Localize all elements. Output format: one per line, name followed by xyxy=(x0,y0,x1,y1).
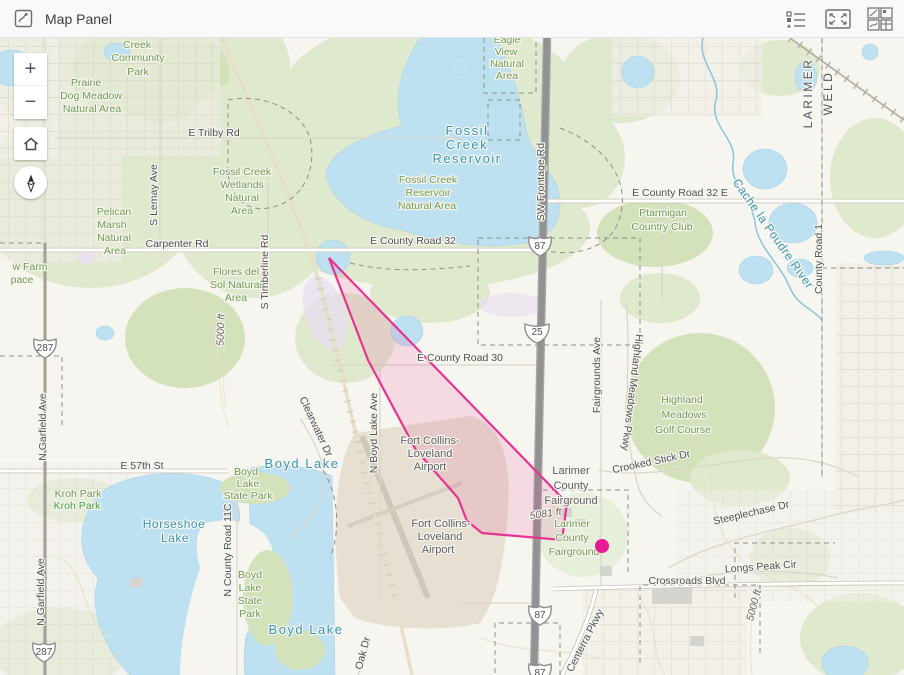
map-label: 5000 ft xyxy=(214,313,227,347)
map-label: County xyxy=(554,480,589,492)
map-label: Marsh xyxy=(97,219,126,231)
compass-button[interactable] xyxy=(14,166,47,199)
map-label: Larimer xyxy=(552,465,590,477)
home-icon xyxy=(21,134,41,154)
map-label: S Lemay Ave xyxy=(148,164,160,226)
map-label: Lake xyxy=(237,478,260,490)
map-label: Park xyxy=(127,66,149,78)
map-label: Crossroads Blvd xyxy=(648,575,725,587)
svg-text:87: 87 xyxy=(534,241,546,252)
map-label: E County Road 32 E xyxy=(632,187,728,199)
map-label: E County Road 30 xyxy=(417,352,503,364)
zoom-out-button[interactable]: − xyxy=(14,86,47,119)
map-label: Community xyxy=(111,52,165,64)
svg-text:287: 287 xyxy=(36,647,53,658)
map-label: Lake xyxy=(161,531,189,545)
map-label: w Farm xyxy=(12,261,48,273)
map-label: Ptarmigan xyxy=(639,207,687,219)
map-label: Boyd xyxy=(234,466,258,478)
panel-title: Map Panel xyxy=(45,11,112,27)
map-label: Horseshoe xyxy=(143,517,206,531)
map-label: Meadows xyxy=(662,409,707,421)
map-label: Eagle xyxy=(494,38,521,46)
map-label: LARIMER xyxy=(801,58,815,129)
map-label: SW Frontage Rd xyxy=(535,143,547,221)
map-label: Reservoir xyxy=(432,151,501,166)
map-label: E Trilby Rd xyxy=(188,127,240,139)
map-label: E County Road 32 xyxy=(370,235,456,247)
map-label: View xyxy=(495,46,518,58)
map-label: N Boyd Lake Ave xyxy=(368,393,380,474)
map-label: Area xyxy=(496,70,518,82)
map-label: Wetlands xyxy=(220,179,264,191)
point-marker-layer xyxy=(595,539,609,553)
map-label: County Road 1 xyxy=(813,224,825,294)
widget-grid-icon[interactable] xyxy=(866,5,894,33)
map-label: Fairgrounds Ave xyxy=(591,337,603,413)
svg-text:87: 87 xyxy=(534,610,546,621)
map-label: Kroh Park xyxy=(54,500,101,512)
zoom-in-button[interactable]: + xyxy=(14,53,47,86)
map-label: N Garfield Ave xyxy=(35,558,47,626)
zoom-control: + − xyxy=(14,53,47,119)
map-label: Lake xyxy=(239,582,262,594)
map-label: E 57th St xyxy=(120,460,163,472)
map-label: Fossil Creek xyxy=(213,166,272,178)
map-label: Fossil xyxy=(446,123,489,138)
map-label: Pelican xyxy=(97,206,132,218)
header-toolbar xyxy=(782,0,894,38)
point-marker[interactable] xyxy=(595,539,609,553)
map-label: Loveland xyxy=(408,448,453,460)
map-label: N County Road 11C xyxy=(222,503,234,597)
map-label: Creek xyxy=(123,39,152,51)
us-route-shield: 87 xyxy=(529,664,551,675)
map-label: State Park xyxy=(223,490,273,502)
legend-icon[interactable] xyxy=(782,5,810,33)
map-label: Park xyxy=(239,608,261,620)
map-label: Boyd Lake xyxy=(269,622,344,637)
map-label: State xyxy=(238,595,263,607)
map-label: pace xyxy=(11,274,34,286)
map-label: County xyxy=(555,532,589,544)
map-label: Carpenter Rd xyxy=(145,238,208,250)
map-label: Area xyxy=(231,205,253,217)
map-label: Area xyxy=(225,292,247,304)
home-button[interactable] xyxy=(14,127,47,160)
map-label: Airport xyxy=(414,461,446,473)
map-panel-icon xyxy=(14,9,33,28)
map-label: Fort Collins- xyxy=(400,435,460,447)
svg-text:87: 87 xyxy=(534,668,546,675)
svg-text:25: 25 xyxy=(531,327,543,338)
svg-text:287: 287 xyxy=(37,343,54,354)
map-label: Natural Area xyxy=(63,103,122,115)
map-label: Reservoir xyxy=(406,187,451,199)
map-label: Loveland xyxy=(418,531,463,543)
map-label: Flores del xyxy=(213,266,259,278)
map-label: Prairie xyxy=(71,77,102,89)
map-label: Highland xyxy=(661,394,703,406)
map-label: Natural xyxy=(97,232,131,244)
map-canvas[interactable]: 87258787287287 CreekCommunityParkPrairie… xyxy=(0,38,904,675)
map-panel-app: Map Panel xyxy=(0,0,904,675)
map-label: Fairground xyxy=(549,546,600,558)
compass-needle-icon xyxy=(21,173,41,193)
map-label: Larimer xyxy=(554,518,590,530)
map-label: Area xyxy=(104,245,126,257)
map-label: S Timberline Rd xyxy=(259,234,271,309)
map-label: Dog Meadow xyxy=(60,90,122,102)
map-label: Boyd Lake xyxy=(265,456,340,471)
map-label: Natural Area xyxy=(398,200,457,212)
map-label: Fort Collins- xyxy=(411,518,471,530)
map-label: Boyd xyxy=(238,569,262,581)
map-label: Airport xyxy=(422,544,454,556)
map-label: Natural xyxy=(225,192,259,204)
map-label: Fairground xyxy=(544,495,597,507)
expand-icon[interactable] xyxy=(824,5,852,33)
map-label: Country Club xyxy=(631,221,692,233)
map-label: N Garfield Ave xyxy=(37,393,49,461)
map-label: Sol Natural xyxy=(210,279,262,291)
map-label: WELD xyxy=(821,71,835,116)
map-label: Natural xyxy=(490,58,524,70)
map-label: Golf Course xyxy=(655,424,711,436)
map-label: Kroh Park xyxy=(55,488,102,500)
map-label: Fossil Creek xyxy=(399,174,458,186)
map-label: Creek xyxy=(446,137,488,152)
panel-header: Map Panel xyxy=(0,0,904,38)
